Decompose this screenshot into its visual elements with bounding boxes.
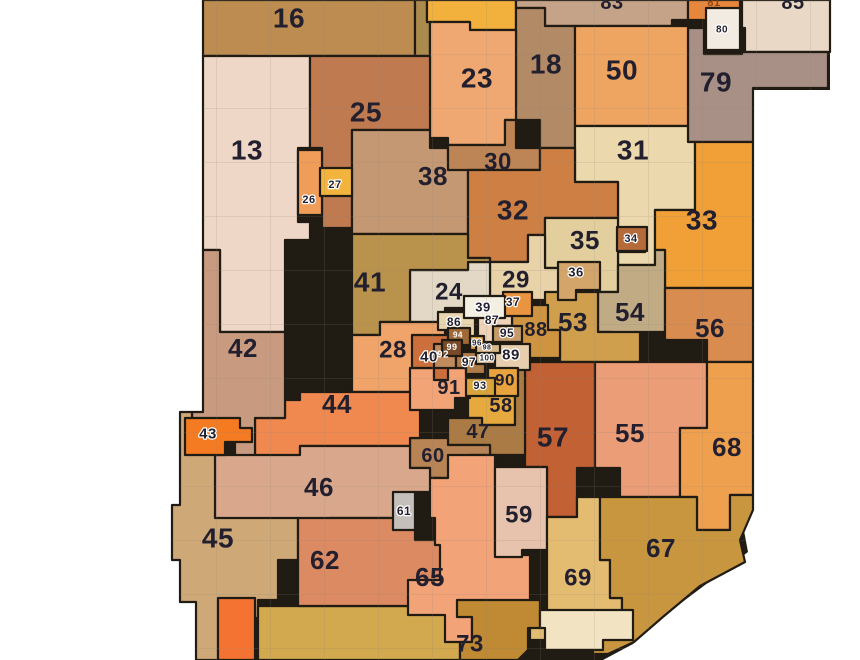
district-13-label: 13 [231, 135, 263, 166]
district-55-label: 55 [615, 418, 645, 448]
district-44-label: 44 [322, 389, 352, 419]
district-58-label: 58 [489, 395, 512, 417]
district-42-label: 42 [228, 333, 258, 363]
district-27-label: 27 [328, 179, 341, 191]
district-69-label: 69 [564, 565, 592, 592]
district-61-label: 61 [397, 504, 411, 518]
district-83-label: 83 [600, 0, 623, 14]
district-97-label: 97 [462, 355, 476, 369]
district-35-label: 35 [570, 225, 600, 255]
district-36-label: 36 [568, 265, 583, 280]
district-29-label: 29 [502, 267, 530, 294]
district-96-label: 96 [472, 339, 482, 348]
district-45-label: 45 [202, 523, 234, 554]
district-95-label: 95 [500, 326, 514, 340]
district-88-label: 88 [524, 319, 547, 341]
district-23-label: 23 [461, 63, 493, 94]
district-60-label: 60 [421, 445, 444, 467]
district-79-label: 79 [700, 67, 732, 98]
district-46-label: 46 [304, 472, 334, 502]
district-38-label: 38 [418, 161, 448, 191]
district-90-label: 90 [495, 371, 515, 390]
district-59-label: 59 [505, 502, 533, 529]
district-32-label: 32 [497, 195, 529, 226]
district-31-label: 31 [617, 135, 649, 166]
district-67-label: 67 [646, 533, 676, 563]
district-39-label: 39 [475, 300, 490, 315]
district-54-label: 54 [615, 297, 645, 327]
district-89-label: 89 [502, 347, 520, 364]
district-41-label: 41 [354, 267, 386, 298]
district-100-label: 100 [480, 354, 495, 363]
district-25-label: 25 [350, 97, 382, 128]
district-68-label: 68 [712, 432, 742, 462]
district-86-label: 86 [447, 315, 461, 329]
district-99-label: 99 [446, 342, 457, 352]
district-73-label: 73 [456, 631, 484, 658]
district-18-label: 18 [530, 49, 562, 80]
district-40-label: 40 [420, 349, 438, 366]
district-80-label: 80 [716, 25, 728, 36]
district-region-unlabeled [218, 598, 255, 660]
district-37-label: 37 [506, 295, 520, 309]
district-87-label: 87 [485, 313, 499, 327]
district-map-stage: 1683818579185023132538303132333529244154… [0, 0, 860, 660]
district-16-label: 16 [273, 3, 305, 34]
district-81-label: 81 [707, 0, 720, 9]
district-50-label: 50 [606, 55, 638, 86]
district-43-label: 43 [199, 426, 217, 443]
district-93-label: 93 [473, 380, 486, 392]
indiana-house-districts-map: 1683818579185023132538303132333529244154… [0, 0, 860, 660]
district-98-label: 98 [483, 345, 492, 352]
district-26-label: 26 [302, 194, 315, 206]
district-47-label: 47 [466, 421, 489, 443]
district-16-region [203, 0, 415, 63]
district-30-label: 30 [484, 149, 512, 176]
district-94-label: 94 [453, 331, 463, 340]
district-57-label: 57 [537, 422, 569, 453]
district-91-label: 91 [437, 377, 460, 399]
district-85-label: 85 [781, 0, 804, 14]
district-24-label: 24 [435, 279, 463, 306]
district-34-label: 34 [624, 233, 638, 245]
district-65-label: 65 [415, 562, 445, 592]
district-62-label: 62 [310, 545, 340, 575]
district-28-label: 28 [379, 337, 407, 364]
district-53-label: 53 [558, 307, 588, 337]
district-33-label: 33 [686, 205, 718, 236]
district-56-label: 56 [695, 313, 725, 343]
